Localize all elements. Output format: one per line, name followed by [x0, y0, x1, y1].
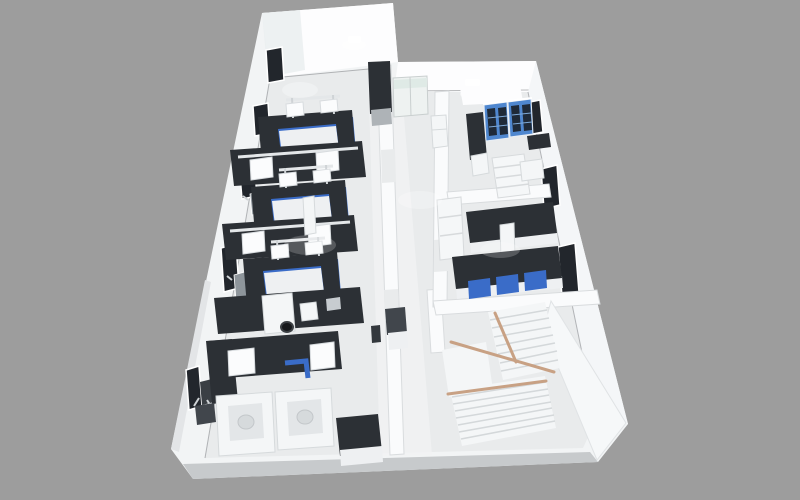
floor-glare-3	[480, 242, 520, 258]
open-shelf-unit-roomC	[437, 197, 464, 260]
biosafety-cabinet-2	[275, 388, 334, 450]
blue-glass-cabinet-2	[508, 99, 533, 137]
floor-glare-1	[398, 191, 442, 209]
floorplan-render	[0, 0, 800, 500]
blue-glass-cabinet-1	[484, 102, 509, 141]
lab-floorplan-svg	[0, 0, 800, 500]
partition-door-gap-1	[381, 149, 396, 183]
ceiling-lamp-2	[465, 79, 480, 86]
floor-glare-2	[284, 235, 336, 255]
window-left-1	[266, 47, 284, 83]
ceiling-lamp-1-glow	[342, 40, 366, 50]
lab-refrigerator	[431, 115, 448, 148]
small-dark-machine	[195, 403, 216, 425]
service-column-leftlab	[303, 196, 316, 235]
tall-dark-cabinet	[368, 61, 392, 126]
window-left-5	[186, 366, 202, 410]
double-glass-door	[393, 76, 428, 117]
dark-counter-bottom	[336, 414, 383, 466]
waste-bin	[371, 325, 381, 343]
dark-counter-under-window	[527, 133, 551, 150]
biosafety-cabinet-1	[216, 392, 275, 456]
floor-glare-4	[282, 82, 318, 98]
